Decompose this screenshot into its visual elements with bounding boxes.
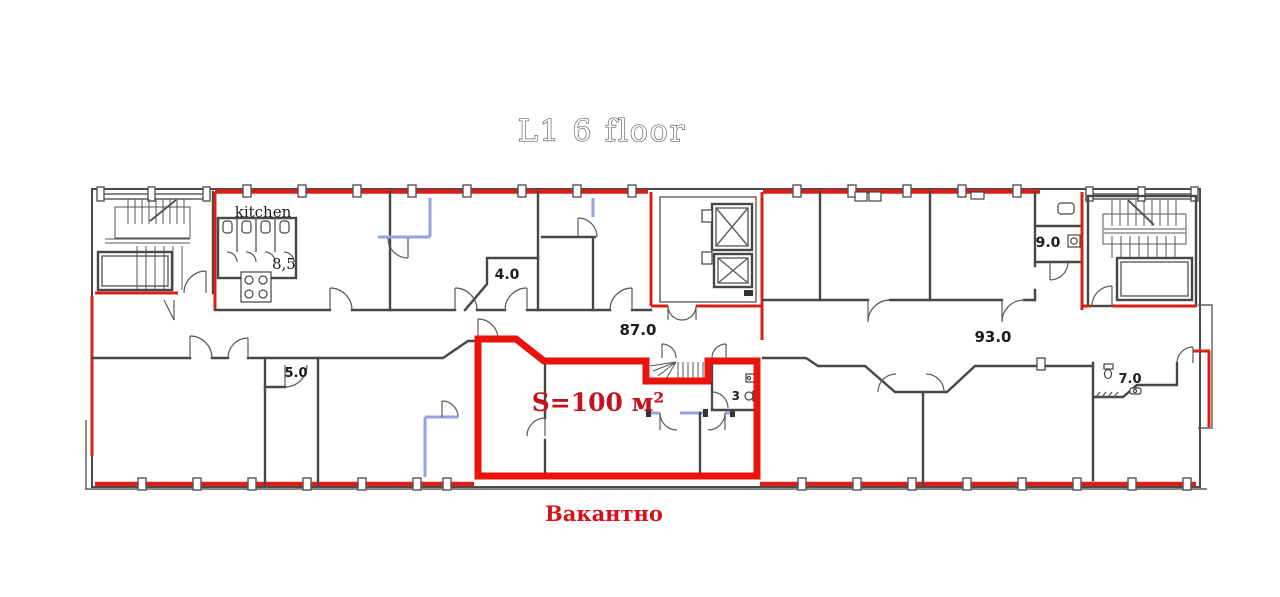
sink-unit	[241, 272, 271, 302]
kitchen-area: kitchen 8,5	[215, 192, 390, 310]
bottom-band-right-rooms: 7.0	[923, 347, 1193, 485]
room-label-kitchen-wc: 8,5	[272, 255, 296, 273]
room-label-5: 5.0	[284, 366, 307, 381]
elevator-shaft-2	[702, 252, 752, 287]
top-band-rooms-right	[763, 192, 1035, 322]
right-stairwell	[1082, 196, 1196, 306]
elevator-shaft-1	[702, 204, 752, 250]
room-label-3: 3	[732, 389, 740, 403]
elevator-block	[651, 192, 762, 340]
floor-plan-canvas: L1 6 floor	[0, 0, 1280, 597]
winder-stair	[650, 362, 703, 379]
room-label-4: 4.0	[495, 267, 520, 283]
corridor: 87.0 93.0	[92, 319, 1093, 392]
vacant-status-label: Вакантно	[545, 501, 663, 526]
room-label-7: 7.0	[1118, 372, 1141, 387]
floor-plan-page: L1 6 floor	[0, 0, 1280, 597]
room-label-9: 9.0	[1036, 235, 1061, 251]
left-stairwell	[95, 192, 213, 320]
floor-title: L1 6 floor	[518, 114, 686, 149]
vacant-area-label: S=100 м²	[532, 388, 665, 417]
vacant-unit[interactable]: 3 S=100 м²	[478, 339, 757, 476]
bottom-band-left-rooms: 5.0	[265, 358, 458, 485]
area-label-93: 93.0	[974, 328, 1011, 346]
room-9-block: 9.0	[1035, 192, 1082, 310]
area-label-87: 87.0	[619, 321, 656, 339]
top-window-posts	[243, 185, 1021, 197]
